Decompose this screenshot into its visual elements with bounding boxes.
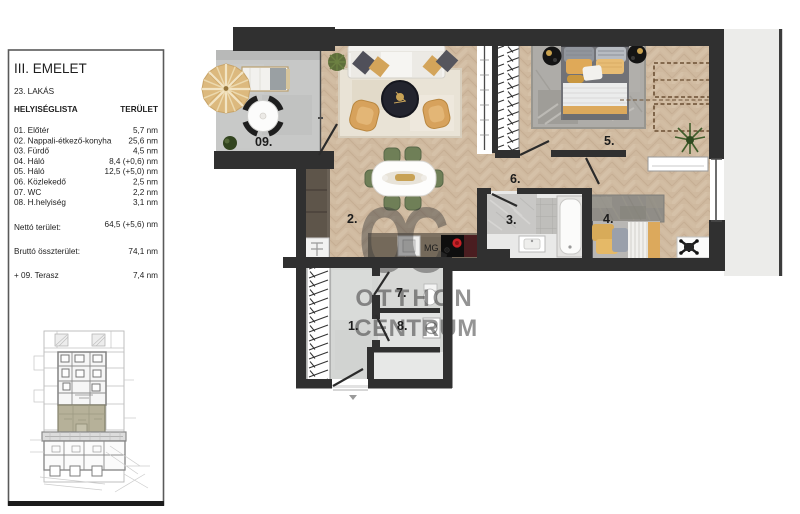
svg-text:3,1 nm: 3,1 nm <box>133 198 158 207</box>
svg-text:5,7 nm: 5,7 nm <box>133 126 158 135</box>
svg-text:3.: 3. <box>506 213 516 227</box>
svg-text:1.: 1. <box>348 319 358 333</box>
svg-text:04. Háló: 04. Háló <box>14 157 45 166</box>
svg-text:09.: 09. <box>255 135 272 149</box>
svg-text:7,4 nm: 7,4 nm <box>133 271 158 280</box>
svg-text:2,5 nm: 2,5 nm <box>133 178 158 187</box>
svg-text:23. LAKÁS: 23. LAKÁS <box>14 86 55 96</box>
svg-text:TERÜLET: TERÜLET <box>120 104 158 114</box>
svg-text:OC: OC <box>359 189 448 292</box>
svg-text:CENTRUM: CENTRUM <box>354 315 478 342</box>
svg-text:06. Közlekedő: 06. Közlekedő <box>14 178 66 187</box>
svg-text:01. Előtér: 01. Előtér <box>14 126 49 135</box>
svg-text:07. WC: 07. WC <box>14 188 41 197</box>
svg-text:02. Nappali-étkező-konyha: 02. Nappali-étkező-konyha <box>14 136 112 145</box>
svg-text:05. Háló: 05. Háló <box>14 167 45 176</box>
svg-text:5.: 5. <box>604 134 614 148</box>
svg-text:2,2 nm: 2,2 nm <box>133 188 158 197</box>
svg-text:Nettó terület:: Nettó terület: <box>14 223 61 232</box>
svg-text:8,4 (+0,6) nm: 8,4 (+0,6) nm <box>109 157 158 166</box>
svg-text:25,6 nm: 25,6 nm <box>128 136 158 145</box>
svg-text:4,5 nm: 4,5 nm <box>133 147 158 156</box>
svg-text:4.: 4. <box>603 212 613 226</box>
svg-text:Bruttó összterület:: Bruttó összterület: <box>14 247 80 256</box>
svg-text:64,5 (+5,6) nm: 64,5 (+5,6) nm <box>105 220 159 229</box>
svg-text:+ 09. Terasz: + 09. Terasz <box>14 271 59 280</box>
svg-text:12,5 (+5,0) nm: 12,5 (+5,0) nm <box>105 167 159 176</box>
svg-text:6.: 6. <box>510 172 520 186</box>
svg-text:2.: 2. <box>347 212 357 226</box>
svg-text:74,1 nm: 74,1 nm <box>128 247 158 256</box>
svg-text:HELYISÉGLISTA: HELYISÉGLISTA <box>14 104 78 114</box>
svg-text:8.: 8. <box>397 319 407 333</box>
svg-text:7.: 7. <box>396 286 406 300</box>
svg-text:03. Fürdő: 03. Fürdő <box>14 147 49 156</box>
svg-text:08. H.helyiség: 08. H.helyiség <box>14 198 66 207</box>
svg-text:III. EMELET: III. EMELET <box>14 61 87 76</box>
